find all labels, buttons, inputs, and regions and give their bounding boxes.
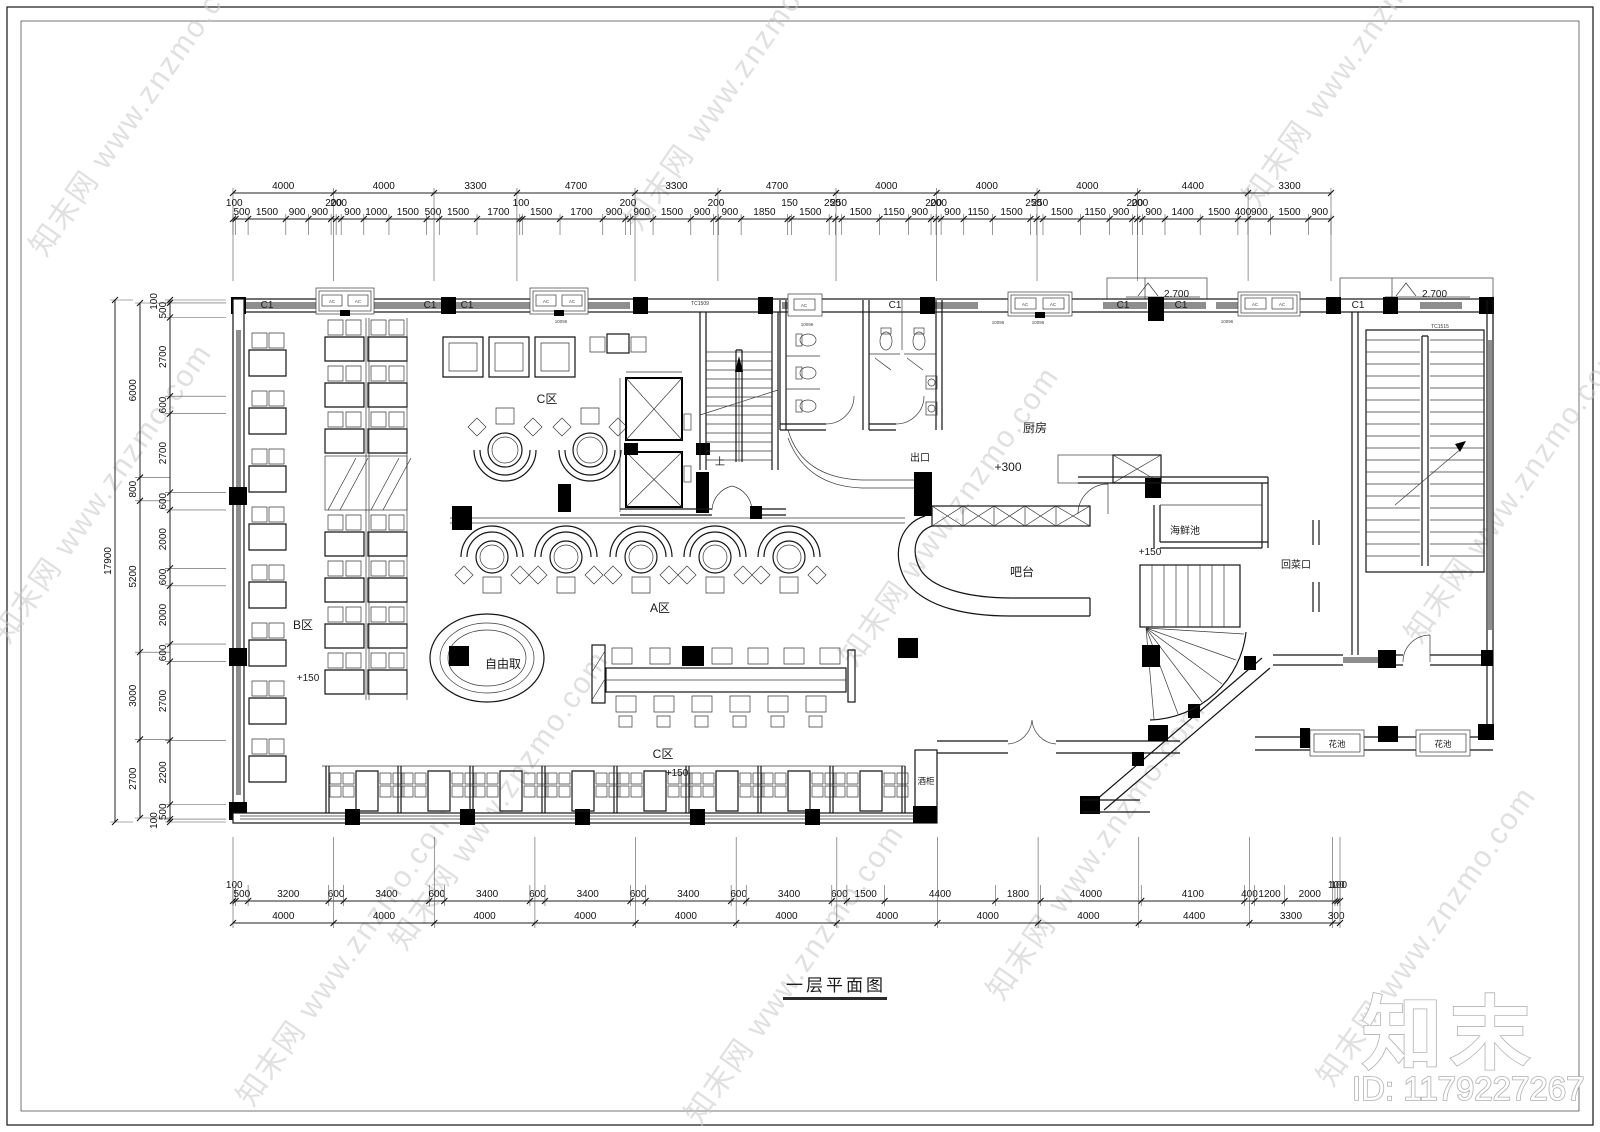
svg-text:4000: 4000 [574,911,597,922]
inner-double-door [712,486,752,510]
svg-text:600: 600 [831,889,848,900]
window-label-c1: C1 [889,300,902,311]
window-label-c1: C1 [461,300,474,311]
window-label-c1: C1 [424,300,437,311]
svg-text:4000: 4000 [473,911,496,922]
svg-text:1850: 1850 [753,207,776,218]
sinks [926,376,937,415]
wall-rightwing-bottom [1273,635,1493,668]
svg-text:1500: 1500 [855,889,878,900]
ac-label: AC [1050,302,1057,307]
svg-text:900: 900 [1311,207,1328,218]
svg-text:2700: 2700 [128,767,139,790]
level-label-150: +150 [1139,547,1162,558]
svg-text:4000: 4000 [373,181,396,192]
title-underline [783,997,887,1000]
svg-text:2700: 2700 [158,442,169,465]
svg-text:1500: 1500 [1208,207,1231,218]
site-logo: 知末 [1362,990,1538,1079]
kitchen-label: 厨房 [1023,420,1047,435]
window-code-tc1509: TC1509 [691,301,709,307]
watermark-text: 知末网 www.znzmo.com [231,800,463,1112]
ac-label: AC [355,299,362,304]
svg-text:3400: 3400 [778,889,801,900]
window-code: 10096 [555,319,568,324]
elevators [620,372,710,513]
ac-label: AC [1252,302,1259,307]
svg-text:500: 500 [158,301,169,318]
svg-text:4000: 4000 [775,911,798,922]
level-label-300: +300 [994,460,1021,474]
main-stair [700,312,778,470]
svg-text:600: 600 [158,644,169,661]
title-text: 一层平面图 [786,976,886,995]
wall-mid-bottom [937,720,1180,753]
stair-up-label: 上 [715,456,725,468]
svg-text:4000: 4000 [272,181,295,192]
svg-text:600: 600 [328,889,345,900]
svg-text:5200: 5200 [128,565,139,588]
watermark-text: 知末网 www.znzmo.com [619,0,851,236]
window-code: 10096 [992,320,1005,325]
svg-text:1800: 1800 [1007,889,1030,900]
svg-text:4000: 4000 [977,911,1000,922]
ac-label: AC [543,299,550,304]
tables-left-wall-row [249,333,286,782]
svg-text:1400: 1400 [1171,207,1194,218]
svg-text:600: 600 [529,889,546,900]
level-label-150: +150 [297,673,320,684]
image-id: ID: 1179227267 [1352,1070,1584,1107]
svg-text:4400: 4400 [929,889,952,900]
svg-text:3400: 3400 [476,889,499,900]
svg-text:1200: 1200 [1258,889,1281,900]
svg-text:4400: 4400 [1182,181,1205,192]
tables-bzone-strips [325,318,411,700]
svg-text:4000: 4000 [1076,181,1099,192]
svg-text:6000: 6000 [128,379,139,402]
svg-text:4000: 4000 [1077,911,1100,922]
svg-text:1500: 1500 [849,207,872,218]
booth-row-czone [322,766,908,813]
lounge-sofas [443,334,646,377]
svg-text:100: 100 [1330,880,1347,891]
svg-text:2200: 2200 [158,761,169,784]
site-stamp: 知末 ID: 1179227267 [1352,990,1584,1107]
terrace-wall-flowerbeds [1255,724,1494,756]
svg-text:1500: 1500 [256,207,279,218]
svg-text:1500: 1500 [447,207,470,218]
zone-label-c-bottom: C区 [653,747,674,761]
svg-text:3400: 3400 [677,889,700,900]
svg-text:150: 150 [781,198,798,209]
svg-text:4000: 4000 [675,911,698,922]
round-tables-row [450,484,905,593]
svg-text:1500: 1500 [661,207,684,218]
svg-text:1150: 1150 [967,207,989,218]
svg-text:800: 800 [128,480,139,497]
buffet-label: 自由取 [485,657,521,671]
dim-left-outer: 17900 [103,297,133,825]
level-label-2700: 2.700 [1422,289,1447,300]
svg-text:600: 600 [158,492,169,509]
seafood-label: 海鲜池 [1170,524,1200,537]
svg-text:4000: 4000 [875,181,898,192]
curved-corridor-wall [788,430,916,488]
svg-text:1000: 1000 [365,207,388,218]
dish-return-label: 回菜口 [1281,559,1311,571]
svg-text:3300: 3300 [1278,181,1301,192]
window-label-c1: C1 [1352,300,1365,311]
svg-text:4700: 4700 [565,181,588,192]
level-label-2700: 2.700 [1164,289,1189,300]
zone-label-a: A区 [650,601,670,615]
ac-label: AC [1279,302,1286,307]
zone-label-c-top: C区 [537,392,558,406]
svg-text:600: 600 [158,568,169,585]
dim-top-inner: 1005001500900900200200900100015005001500… [226,198,1334,235]
svg-text:250: 250 [830,198,847,209]
svg-text:900: 900 [1145,207,1162,218]
ac-label: AC [1022,302,1029,307]
svg-text:3200: 3200 [277,889,300,900]
window-code: 10096 [801,322,814,327]
window-label-c1: C1 [261,300,274,311]
svg-text:100: 100 [513,198,530,209]
svg-text:900: 900 [344,207,361,218]
window-code: 10096 [1221,319,1234,324]
window-code-tc1515: TC1515 [1431,324,1449,330]
exit-label: 出口 [910,451,930,464]
svg-text:1500: 1500 [799,207,822,218]
dim-top-outer: 4000400033004700330047004000400040004400… [230,181,1334,281]
watermark-text: 知末网 www.znzmo.com [679,818,911,1130]
flower-bed-label: 花池 [1328,739,1346,749]
svg-text:1500: 1500 [1278,207,1301,218]
svg-text:17900: 17900 [103,547,114,575]
svg-text:600: 600 [630,889,647,900]
svg-text:600: 600 [730,889,747,900]
svg-text:1700: 1700 [570,207,593,218]
svg-text:4000: 4000 [1080,889,1103,900]
watermark-text: 知末网 www.znzmo.com [24,0,256,262]
watermark-text: 知末网 www.znzmo.com [0,337,219,649]
svg-text:3300: 3300 [1280,911,1303,922]
svg-text:4100: 4100 [1182,889,1205,900]
svg-text:1700: 1700 [487,207,510,218]
svg-text:900: 900 [721,207,738,218]
svg-text:2000: 2000 [158,528,169,551]
plan-labels: C1 C1 C1 C1 C1 C1 C1 TC1509 TC1515 10096… [261,289,1452,786]
wine-cabinet [913,750,937,823]
level-label-150: +150 [666,768,689,779]
bar-label: 吧台 [1010,564,1034,579]
svg-text:3300: 3300 [665,181,688,192]
svg-text:3300: 3300 [464,181,487,192]
svg-text:1500: 1500 [1051,207,1074,218]
svg-text:1500: 1500 [397,207,420,218]
svg-text:1150: 1150 [883,207,905,218]
svg-text:2000: 2000 [1299,889,1322,900]
svg-text:2700: 2700 [158,345,169,368]
entry-double-door [1008,720,1056,744]
svg-text:3400: 3400 [375,889,398,900]
svg-text:4400: 4400 [1183,911,1206,922]
window-label-c1: C1 [1117,300,1130,311]
svg-text:600: 600 [428,889,445,900]
svg-text:3000: 3000 [128,684,139,707]
svg-text:900: 900 [1251,207,1268,218]
svg-text:900: 900 [289,207,306,218]
wine-cabinet-label: 酒柜 [917,776,935,786]
svg-text:3400: 3400 [577,889,600,900]
svg-text:1500: 1500 [530,207,553,218]
ac-label: AC [569,299,576,304]
svg-text:4000: 4000 [876,911,899,922]
svg-text:2700: 2700 [158,689,169,712]
ac-label: AC [329,299,336,304]
window-label-c1: C1 [1175,300,1188,311]
svg-text:4000: 4000 [976,181,999,192]
cad-sheet: 知末网 www.znzmo.com 知末网 www.znzmo.com 知末网 … [0,0,1600,1132]
watermark-text: 知末网 www.znzmo.com [1237,0,1469,212]
watermark-text: 知末网 www.znzmo.com [1399,337,1600,649]
flower-bed-label: 花池 [1434,739,1452,749]
ac-label: AC [801,303,808,308]
zone-label-b: B区 [293,618,313,632]
svg-text:900: 900 [944,207,961,218]
svg-text:4000: 4000 [373,911,396,922]
svg-text:4000: 4000 [272,911,295,922]
svg-text:900: 900 [633,207,650,218]
urinals [796,334,816,412]
svg-text:100: 100 [149,812,160,829]
svg-text:1150: 1150 [1084,207,1106,218]
window-code: 10096 [1032,320,1045,325]
exterior-wall-left [229,299,247,820]
round-tables-upper [468,408,627,481]
svg-text:250: 250 [1031,198,1048,209]
svg-text:600: 600 [158,396,169,413]
svg-text:400: 400 [1235,207,1252,218]
svg-text:1500: 1500 [1000,207,1023,218]
svg-text:2000: 2000 [158,603,169,626]
svg-text:4700: 4700 [766,181,789,192]
